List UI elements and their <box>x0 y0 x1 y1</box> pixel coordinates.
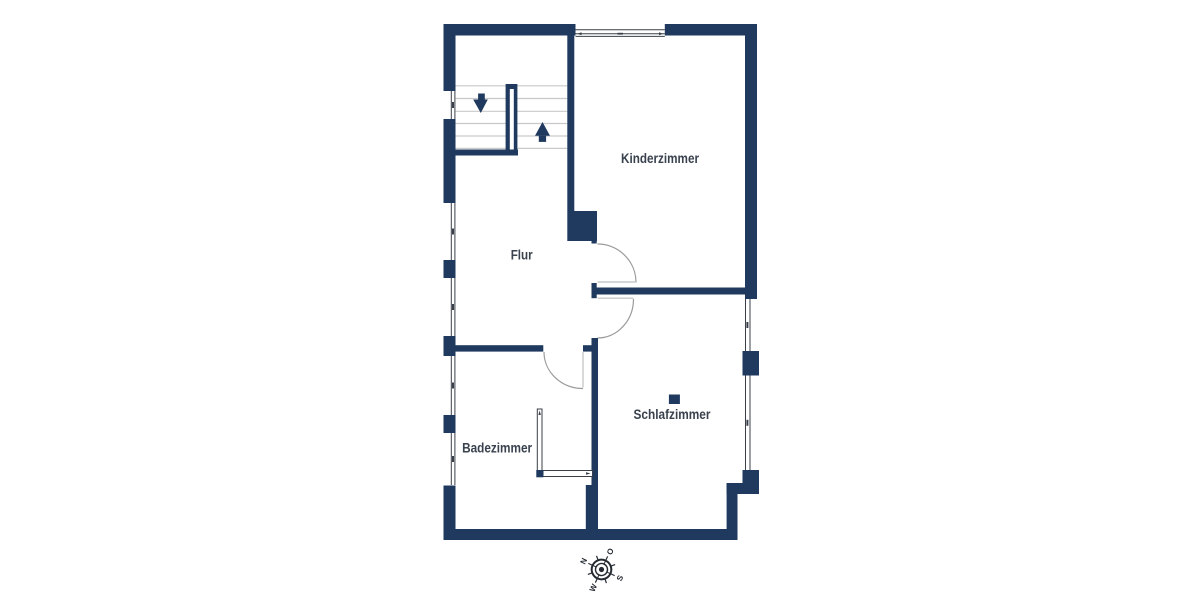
svg-text:Flur: Flur <box>511 247 533 263</box>
svg-text:Schlafzimmer: Schlafzimmer <box>634 406 711 422</box>
svg-text:Kinderzimmer: Kinderzimmer <box>621 150 699 166</box>
svg-text:Badezimmer: Badezimmer <box>462 440 532 456</box>
